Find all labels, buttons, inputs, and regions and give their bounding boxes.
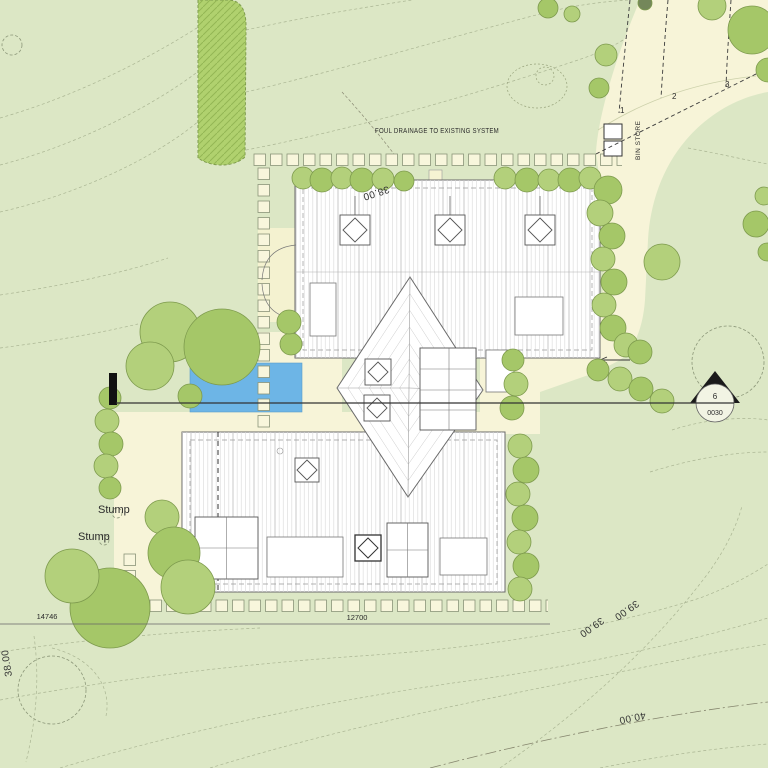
tree-canopy <box>513 553 539 579</box>
tree-canopy <box>591 247 615 271</box>
dimension-label-west: 14746 <box>37 612 58 621</box>
tree-canopy <box>564 6 580 22</box>
tree-canopy <box>601 269 627 295</box>
tree-canopy <box>331 167 353 189</box>
label-foul-drainage: FOUL DRAINAGE TO EXISTING SYSTEM <box>375 128 499 135</box>
tree-canopy <box>500 396 524 420</box>
rooflight-5 <box>355 535 381 561</box>
tree-canopy <box>99 477 121 499</box>
tree-canopy <box>608 367 632 391</box>
section-end-marker <box>109 373 117 405</box>
tree-canopy <box>506 482 530 506</box>
hedge-squares-north <box>252 152 622 169</box>
section-marker-sheet: 0030 <box>707 410 723 417</box>
tree-canopy <box>512 505 538 531</box>
tree-canopy <box>644 244 680 280</box>
tree-canopy <box>99 432 123 456</box>
link-glazed-rooflight <box>420 348 476 430</box>
tree-canopy <box>45 549 99 603</box>
skylight-grid-east <box>387 523 428 577</box>
bin-1 <box>604 124 622 139</box>
tree-canopy <box>310 168 334 192</box>
tree-canopy <box>277 310 301 334</box>
tree-canopy <box>638 0 652 10</box>
tree-canopy <box>502 349 524 371</box>
tree-canopy <box>538 0 558 18</box>
tree-canopy <box>650 389 674 413</box>
tree-canopy <box>589 78 609 98</box>
tree-canopy <box>504 372 528 396</box>
skylight-plain-center <box>267 537 343 577</box>
parking-bay-number-3: 3 <box>725 80 730 89</box>
skylight-east <box>515 297 563 335</box>
tree-canopy <box>94 454 118 478</box>
tree-canopy <box>592 293 616 317</box>
rooflight-7 <box>364 395 390 421</box>
skylight-plain-east <box>440 538 487 575</box>
label-stump-lower: Stump <box>78 531 110 543</box>
tree-canopy <box>350 168 374 192</box>
skylight-west <box>310 283 336 336</box>
label-bin-store: BIN STORE <box>635 120 642 160</box>
tree-canopy <box>595 44 617 66</box>
tree-canopy <box>178 384 202 408</box>
tree-canopy <box>95 409 119 433</box>
section-marker-number: 6 <box>713 392 718 401</box>
tree-canopy <box>280 333 302 355</box>
tree-canopy <box>161 560 215 614</box>
hedge-squares-west <box>256 166 273 430</box>
tree-canopy <box>587 359 609 381</box>
tree-canopy <box>494 167 516 189</box>
tree-canopy <box>599 223 625 249</box>
label-stump-upper: Stump <box>98 504 130 516</box>
dimension-label-south: 12700 <box>347 613 368 622</box>
hedge-strip <box>198 0 246 165</box>
tree-canopy <box>507 530 531 554</box>
tree-canopy <box>126 342 174 390</box>
tree-canopy <box>515 168 539 192</box>
tree-canopy <box>629 377 653 401</box>
tree-canopy <box>184 309 260 385</box>
parking-bay-number-2: 2 <box>672 92 677 101</box>
bin-2 <box>604 141 622 156</box>
tree-canopy <box>558 168 582 192</box>
tree-canopy <box>587 200 613 226</box>
rooflight-6 <box>365 359 391 385</box>
tree-canopy <box>394 171 414 191</box>
site-plan: 6 0030 14746 12700 FOUL DRAINAGE TO EXIS… <box>0 0 768 768</box>
rooflight-4 <box>295 458 319 482</box>
tree-canopy <box>538 169 560 191</box>
tree-canopy <box>628 340 652 364</box>
lower-building-roof <box>182 432 505 592</box>
parking-bay-number-1: 1 <box>620 106 625 115</box>
tree-canopy <box>508 577 532 601</box>
tree-canopy <box>513 457 539 483</box>
tree-canopy <box>743 211 768 237</box>
tree-canopy <box>508 434 532 458</box>
